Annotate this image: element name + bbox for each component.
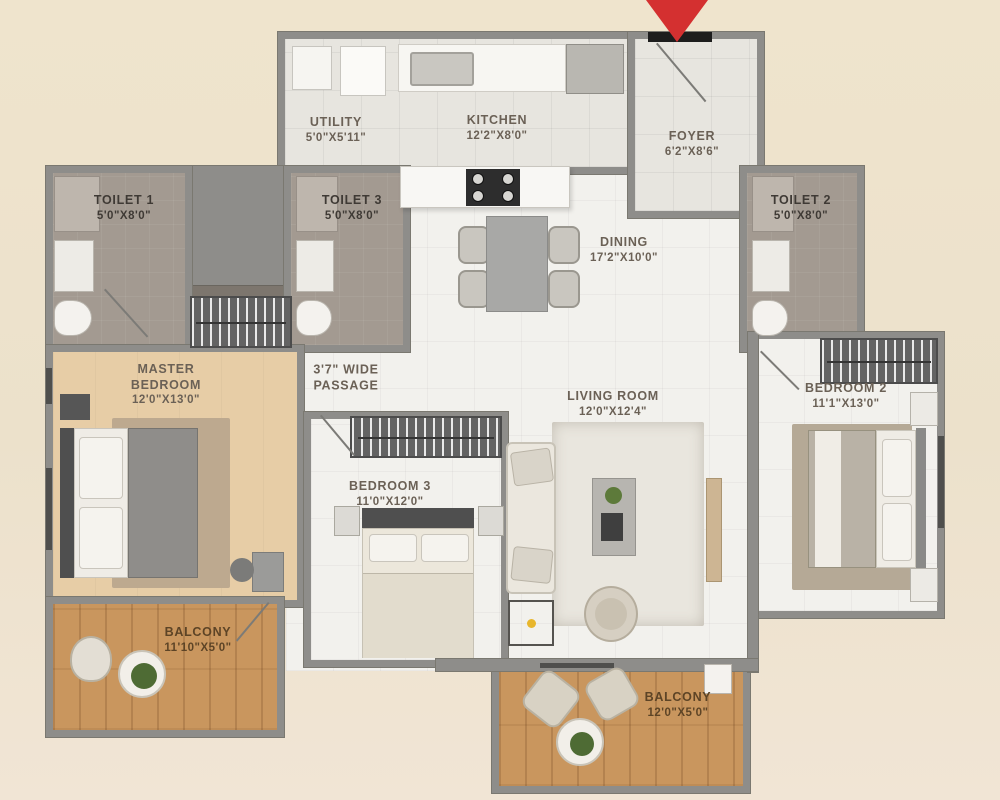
dining-table	[486, 216, 548, 312]
bed-sheet	[815, 431, 841, 567]
tray	[601, 513, 623, 541]
bedroom3-wardrobe	[350, 416, 502, 458]
utility-appliance-2	[340, 46, 386, 96]
armchair-seat	[595, 598, 627, 630]
bedroom2-nightstand	[910, 392, 938, 426]
pillow	[79, 507, 123, 569]
toilet2-washbasin	[752, 240, 790, 292]
toilet2-shower	[752, 176, 794, 232]
coffee-table	[592, 478, 636, 556]
toilet1-shower	[54, 176, 100, 232]
balcony1-table	[118, 650, 166, 698]
balcony2-table	[556, 718, 604, 766]
toilet3-shower	[296, 176, 338, 232]
bedroom3-nightstand	[478, 506, 504, 536]
pillow	[421, 534, 469, 562]
floor-plan: UTILITY 5'0"X5'11" KITCHEN 12'2"X8'0" FO…	[0, 0, 1000, 800]
toilet1-washbasin	[54, 240, 94, 292]
burner-icon	[502, 190, 514, 202]
bedroom2-bed-headboard	[916, 428, 926, 570]
plant-icon	[131, 663, 157, 689]
lamp-icon	[527, 619, 536, 628]
sofa	[506, 442, 556, 594]
armchair	[584, 586, 638, 642]
wall-living-bedroom2	[748, 332, 758, 672]
bedroom3-bed-headboard	[362, 508, 474, 528]
toilet1-wc	[54, 300, 92, 336]
bedroom2-nightstand	[910, 568, 938, 602]
master-bed-pillow-zone	[74, 428, 128, 578]
master-wardrobe	[190, 296, 292, 348]
master-bed-blanket	[128, 428, 198, 578]
window-bedroom2	[938, 436, 944, 528]
pillow	[369, 534, 417, 562]
burner-icon	[472, 190, 484, 202]
plant-icon	[605, 487, 622, 504]
bedroom3-bed	[362, 528, 474, 658]
wardrobe-rail	[827, 361, 932, 363]
service-shaft	[186, 166, 298, 292]
bedroom3-blanket	[363, 573, 473, 658]
toilet3-wc	[296, 300, 332, 336]
balcony2-door-panel	[704, 664, 732, 694]
plant-icon	[570, 732, 594, 756]
bedroom3-nightstand	[334, 506, 360, 536]
wardrobe-rail	[358, 437, 494, 439]
pillow	[882, 503, 912, 561]
bedroom2-bed-blanket	[808, 430, 876, 568]
balcony1-chair	[70, 636, 112, 682]
master-nightstand	[60, 394, 90, 420]
pillow	[882, 439, 912, 497]
burner-icon	[502, 173, 514, 185]
dining-chair	[548, 226, 580, 264]
hob	[466, 169, 520, 206]
toilet3-washbasin	[296, 240, 334, 292]
entrance-arrow-icon	[646, 0, 708, 42]
pillow	[79, 437, 123, 499]
sofa-cushion	[510, 546, 553, 584]
kitchen-sink	[410, 52, 474, 86]
tv-console	[706, 478, 722, 582]
window-master-1	[46, 368, 52, 404]
sofa-cushion	[510, 447, 554, 486]
master-desk	[252, 552, 284, 592]
wardrobe-rail	[196, 322, 286, 324]
window-living	[540, 663, 614, 668]
burner-icon	[472, 173, 484, 185]
side-table	[508, 600, 554, 646]
master-bed-headboard	[60, 428, 74, 578]
utility-appliance-1	[292, 46, 332, 90]
window-master-2	[46, 468, 52, 550]
master-desk-chair	[230, 558, 254, 582]
fridge	[566, 44, 624, 94]
bedroom2-bed-pillow-zone	[876, 430, 916, 568]
bedroom2-wardrobe	[820, 338, 938, 384]
dining-chair	[548, 270, 580, 308]
toilet2-wc	[752, 300, 788, 336]
